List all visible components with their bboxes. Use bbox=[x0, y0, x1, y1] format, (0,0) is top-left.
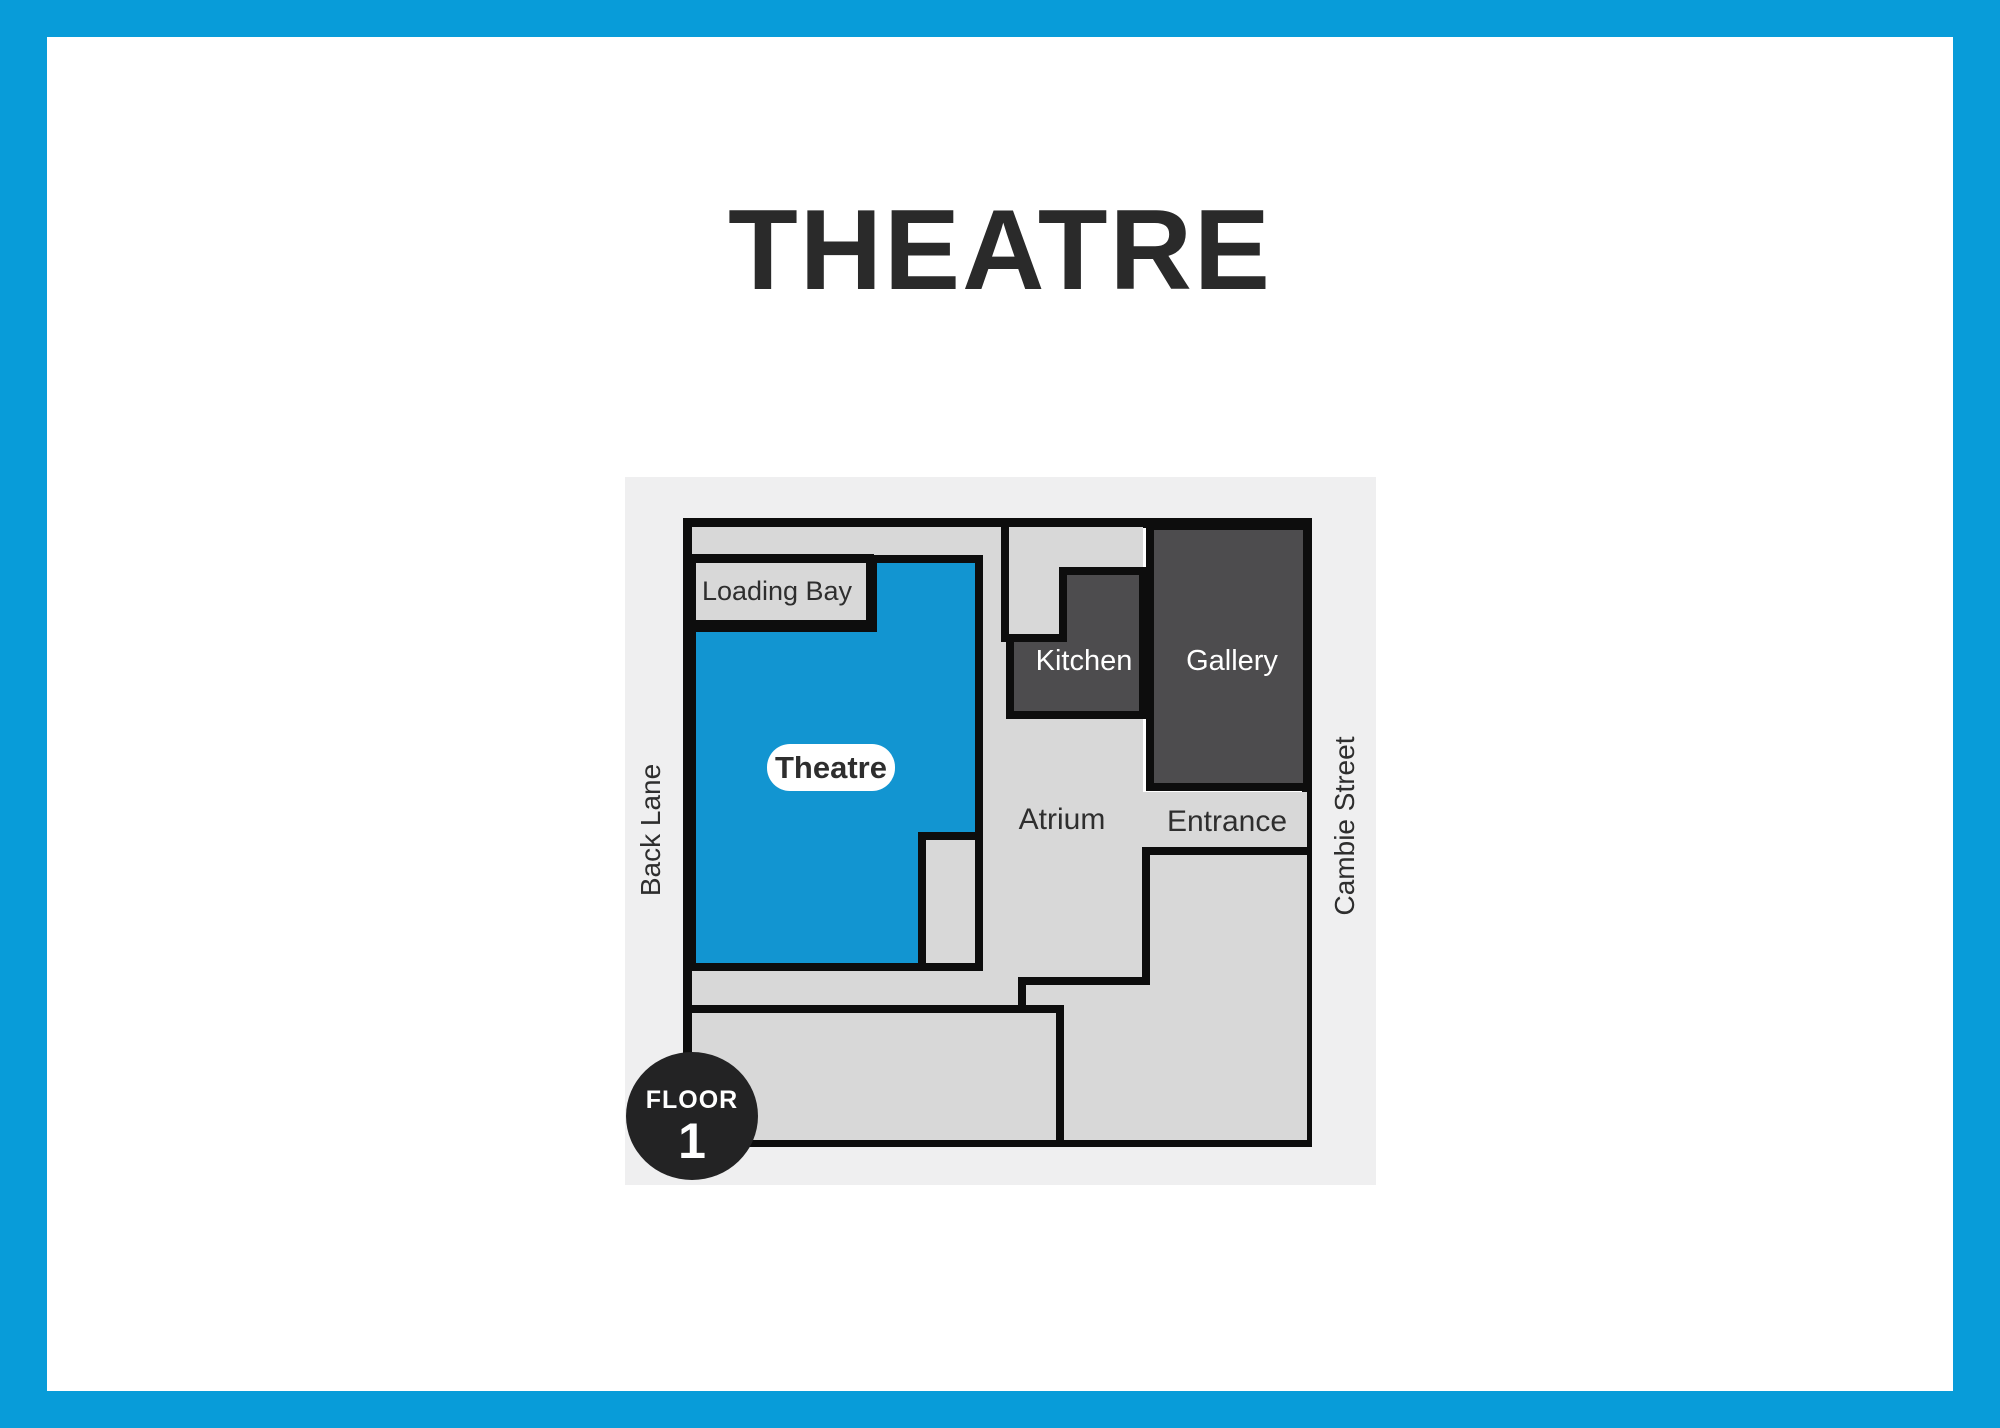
label-gallery: Gallery bbox=[1186, 645, 1278, 677]
floor-plan: Loading Bay Kitchen Gallery Atrium Entra… bbox=[625, 477, 1376, 1185]
floor-badge-number: 1 bbox=[678, 1113, 706, 1169]
floor-plan-panel: Loading Bay Kitchen Gallery Atrium Entra… bbox=[625, 477, 1376, 1185]
label-theatre: Theatre bbox=[775, 750, 887, 785]
page-title: THEATRE bbox=[47, 185, 1953, 316]
label-kitchen: Kitchen bbox=[1036, 645, 1133, 677]
floor-badge-floor-text: FLOOR bbox=[646, 1086, 739, 1114]
label-atrium: Atrium bbox=[1019, 803, 1106, 836]
floor-badge: FLOOR 1 bbox=[626, 1052, 758, 1180]
label-loading-bay: Loading Bay bbox=[702, 576, 853, 606]
page-frame: THEATRE bbox=[0, 0, 2000, 1428]
label-entrance: Entrance bbox=[1167, 805, 1287, 838]
label-back-lane: Back Lane bbox=[635, 764, 666, 896]
label-cambie-street: Cambie Street bbox=[1329, 736, 1360, 915]
corridor-floor bbox=[692, 971, 1022, 1009]
theatre-notch-room bbox=[922, 836, 979, 967]
